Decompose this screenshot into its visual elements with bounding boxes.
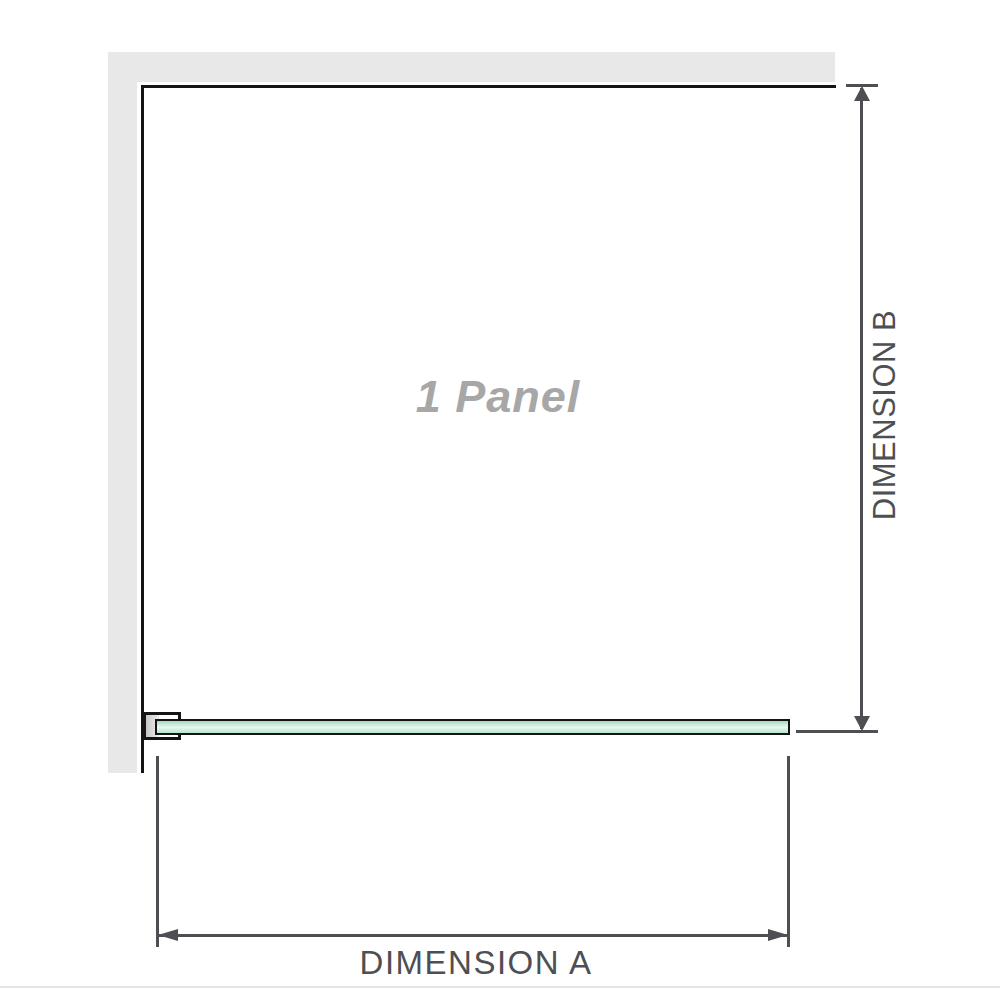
panel-outline-top-edge xyxy=(141,85,836,88)
dimension-a-label: DIMENSION A xyxy=(360,944,593,982)
glass-panel-bar xyxy=(155,719,790,735)
dimension-b-label: DIMENSION B xyxy=(867,310,903,520)
panel-count-label: 1 Panel xyxy=(416,371,581,423)
dimension-a-left-extension xyxy=(156,756,159,947)
wall-left-band xyxy=(108,52,137,773)
dimension-a-line xyxy=(158,934,788,937)
shower-panel-dimension-diagram: 1 Panel DIMENSION B DIMENSION A xyxy=(0,0,1000,1000)
arrow-down-icon xyxy=(854,716,870,731)
arrow-left-icon xyxy=(158,929,178,941)
dimension-a-right-extension xyxy=(787,756,790,947)
dimension-b-line xyxy=(860,88,863,729)
arrow-up-icon xyxy=(854,86,870,101)
page-baseline-divider xyxy=(0,986,1000,988)
arrow-right-icon xyxy=(768,929,788,941)
panel-outline-left-edge xyxy=(141,85,144,773)
wall-top-band xyxy=(108,52,835,82)
